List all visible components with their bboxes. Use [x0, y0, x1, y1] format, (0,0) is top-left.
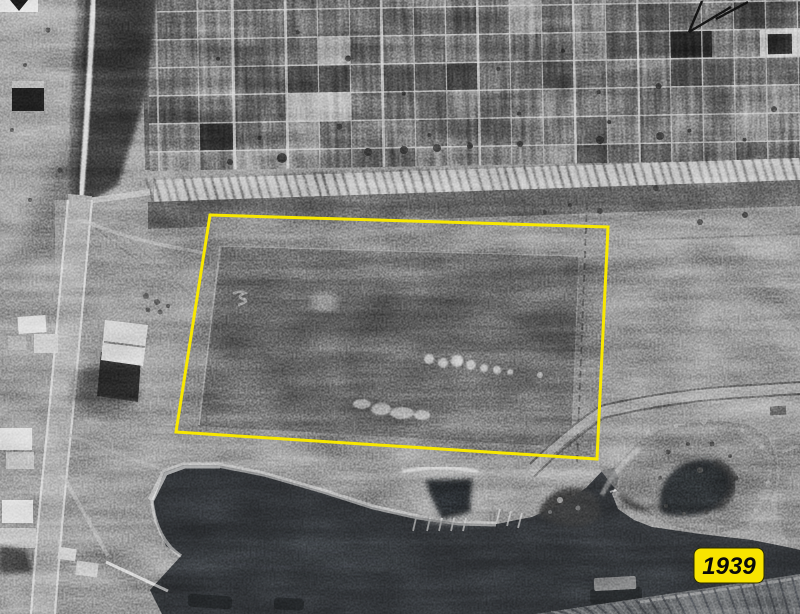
svg-text:1939: 1939	[702, 553, 756, 580]
